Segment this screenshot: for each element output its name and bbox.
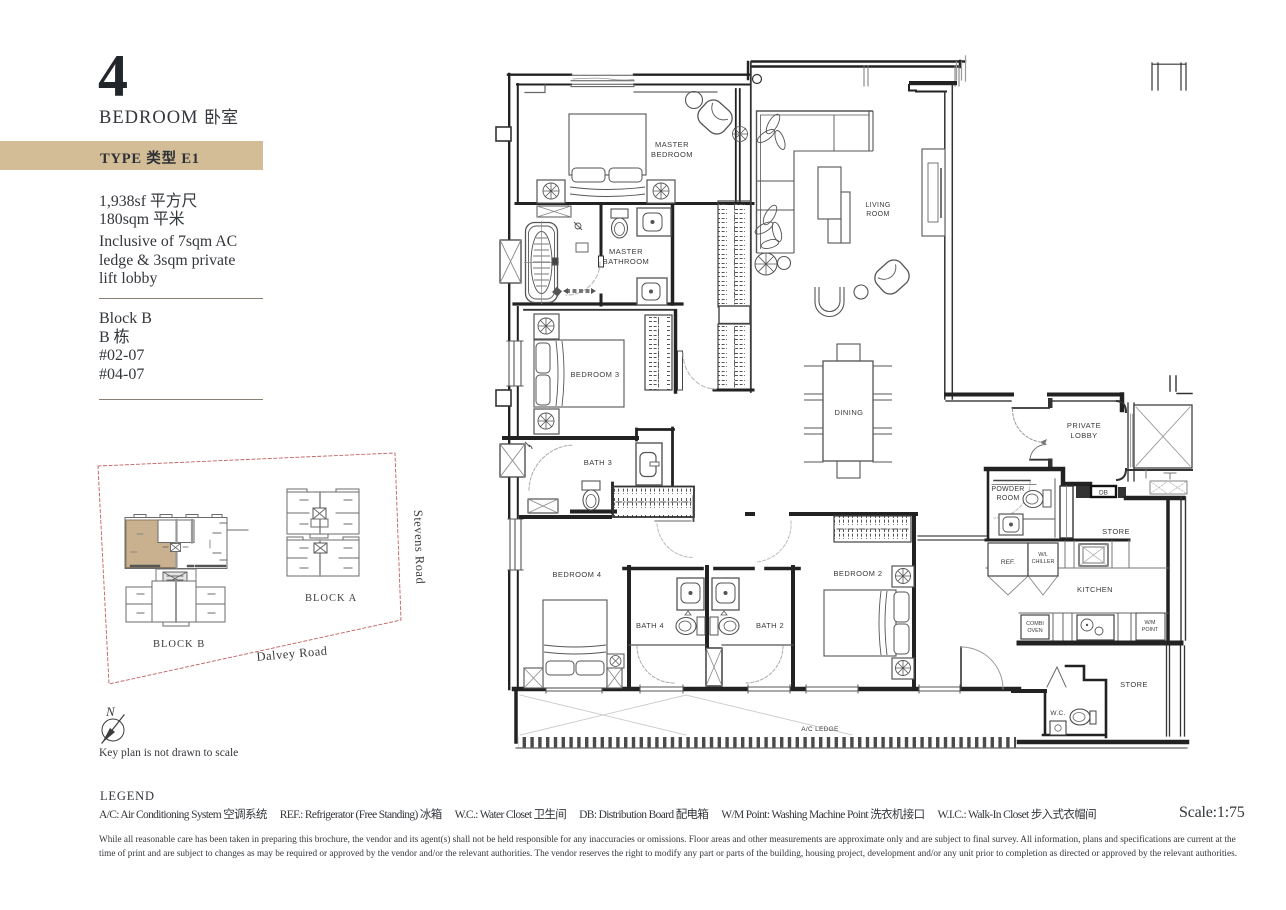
svg-text:MASTER: MASTER (609, 247, 643, 256)
svg-text:CHILLER: CHILLER (1032, 559, 1055, 565)
svg-text:STORE: STORE (1120, 680, 1148, 689)
svg-text:W/M: W/M (1144, 620, 1156, 626)
svg-text:STORE: STORE (1102, 527, 1130, 536)
svg-text:W.C.: W.C. (1050, 710, 1065, 717)
svg-text:MASTER: MASTER (655, 140, 689, 149)
svg-text:W/L: W/L (1038, 552, 1048, 558)
svg-text:BATHROOM: BATHROOM (603, 257, 649, 266)
svg-text:DB: DB (1099, 490, 1108, 497)
svg-text:Stevens Road: Stevens Road (411, 510, 428, 585)
svg-text:BEDROOM 4: BEDROOM 4 (552, 570, 601, 579)
svg-text:POINT: POINT (1142, 627, 1159, 633)
svg-text:BEDROOM 3: BEDROOM 3 (570, 370, 619, 379)
svg-text:REF.: REF. (1001, 559, 1015, 566)
svg-text:OVEN: OVEN (1027, 628, 1042, 634)
svg-text:BATH 3: BATH 3 (584, 458, 612, 467)
svg-text:DINING: DINING (835, 408, 864, 417)
svg-text:POWDER: POWDER (991, 486, 1024, 493)
svg-text:Dalvey Road: Dalvey Road (256, 644, 328, 664)
svg-text:A/C LEDGE: A/C LEDGE (801, 726, 839, 733)
svg-text:PRIVATE: PRIVATE (1067, 421, 1101, 430)
svg-text:ROOM: ROOM (866, 211, 889, 218)
svg-text:BLOCK A: BLOCK A (305, 593, 357, 604)
svg-text:COMBI: COMBI (1026, 621, 1044, 627)
svg-text:BATH 4: BATH 4 (636, 621, 664, 630)
svg-text:BATH 2: BATH 2 (756, 621, 784, 630)
svg-text:N: N (105, 704, 116, 719)
svg-text:KITCHEN: KITCHEN (1077, 585, 1113, 594)
svg-text:ROOM: ROOM (997, 495, 1020, 502)
svg-text:BEDROOM 2: BEDROOM 2 (833, 569, 882, 578)
svg-text:BEDROOM: BEDROOM (651, 150, 693, 159)
svg-text:LOBBY: LOBBY (1070, 431, 1097, 440)
svg-text:BLOCK B: BLOCK B (153, 639, 205, 650)
svg-text:LIVING: LIVING (865, 202, 890, 209)
